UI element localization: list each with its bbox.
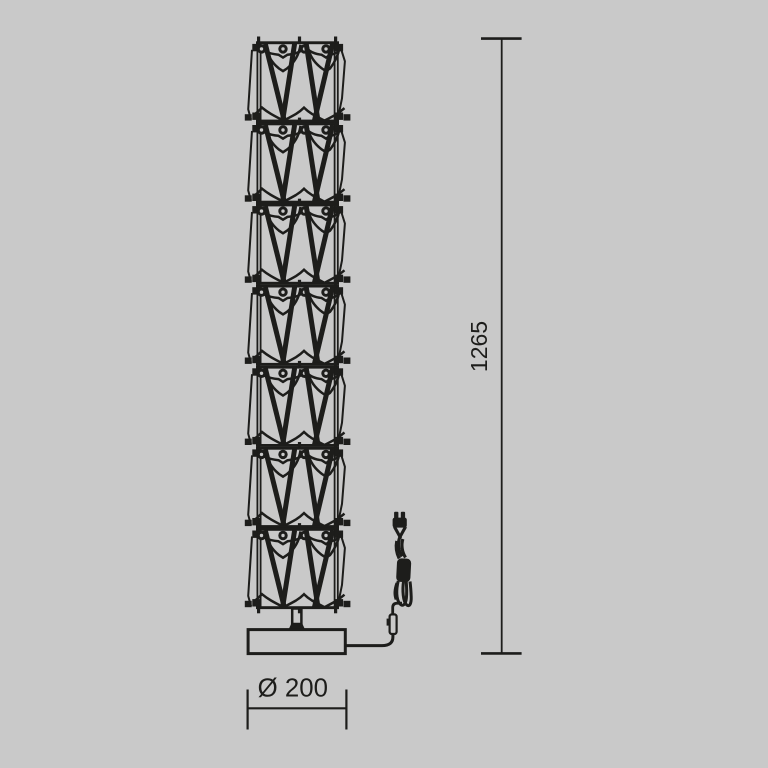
- svg-text:1265: 1265: [466, 321, 492, 372]
- svg-text:Ø 200: Ø 200: [258, 674, 328, 702]
